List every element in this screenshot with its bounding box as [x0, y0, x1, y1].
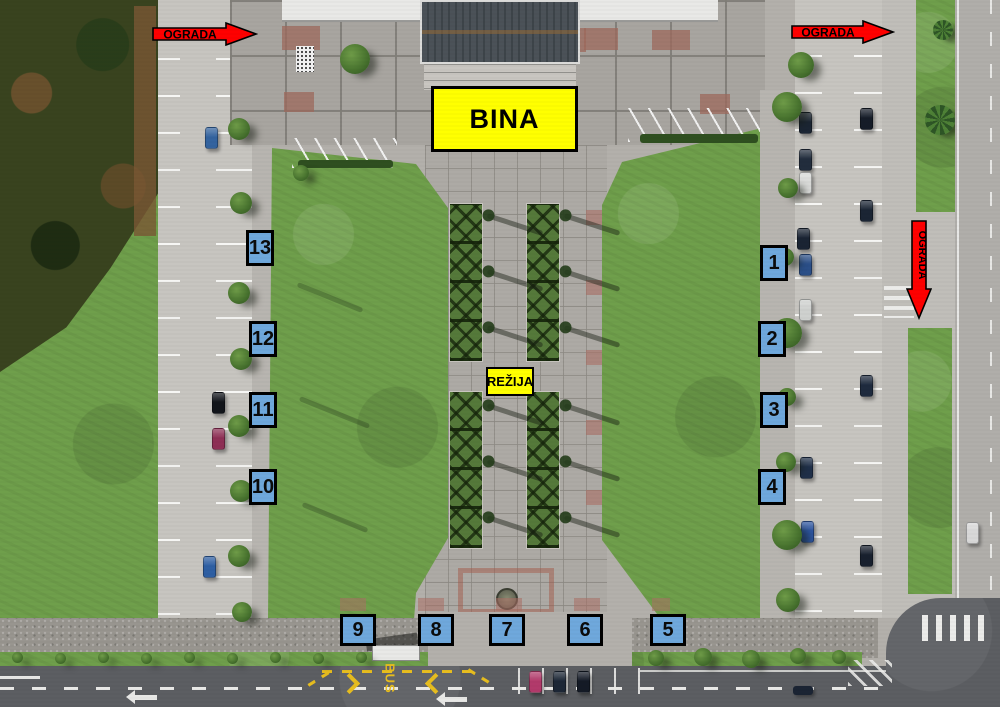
car	[797, 228, 810, 250]
stand-marker-8: 8	[418, 614, 454, 646]
car	[860, 200, 873, 222]
stand-marker-4: 4	[758, 469, 786, 505]
stand-marker-10: 10	[249, 469, 277, 505]
red-tile	[652, 30, 690, 50]
hatched-marking	[848, 660, 892, 686]
car	[799, 172, 812, 194]
fence-arrow-right-side: OGRADA	[906, 220, 932, 320]
car	[799, 299, 812, 321]
car	[577, 671, 590, 693]
car	[203, 556, 216, 578]
stage-roof	[420, 0, 580, 64]
parking-bay-lines	[158, 58, 180, 618]
car	[793, 686, 813, 695]
car	[529, 671, 542, 693]
road-line	[0, 676, 40, 679]
road-arrow-left	[445, 697, 467, 702]
stand-marker-12: 12	[249, 321, 277, 357]
bush	[313, 653, 324, 664]
street-edge-line	[957, 0, 959, 618]
stand-marker-1: 1	[760, 245, 788, 281]
tree	[788, 52, 814, 78]
bush	[184, 652, 195, 663]
red-tile-column	[586, 210, 603, 560]
tree	[772, 520, 802, 550]
bush	[356, 652, 367, 663]
stage-label: BINA	[431, 86, 578, 152]
hedge-row	[640, 134, 758, 143]
fence-label: OGRADA	[916, 231, 928, 280]
planter-strip	[526, 391, 560, 549]
car	[799, 254, 812, 276]
bus-road-marking: BUS	[383, 663, 398, 693]
stand-marker-9: 9	[340, 614, 376, 646]
tree	[293, 165, 309, 181]
tree	[232, 602, 252, 622]
planter-strip	[449, 203, 483, 362]
planter-strip	[449, 391, 483, 549]
street-dashed-line	[990, 0, 992, 618]
bush	[742, 650, 760, 668]
red-tile	[584, 28, 618, 50]
tree	[228, 415, 250, 437]
stand-marker-7: 7	[489, 614, 525, 646]
building-wing	[578, 0, 718, 22]
car	[800, 457, 813, 479]
tree	[778, 178, 798, 198]
bush	[227, 653, 238, 664]
aerial-site-map: BUS OGRADA OGRADA	[0, 0, 1000, 707]
tree	[230, 192, 252, 214]
bush	[55, 653, 66, 664]
bush	[790, 648, 806, 664]
car	[860, 375, 873, 397]
tree	[228, 545, 250, 567]
bush	[98, 652, 109, 663]
stand-marker-3: 3	[760, 392, 788, 428]
fence-arrow-top-left: OGRADA	[152, 22, 258, 46]
grass-verge	[908, 328, 952, 594]
bush	[141, 653, 152, 664]
tree	[772, 92, 802, 122]
car	[801, 521, 814, 543]
bush	[648, 650, 664, 666]
car	[799, 112, 812, 134]
fence-label: OGRADA	[163, 28, 217, 42]
checkerboard-paving	[296, 46, 314, 72]
palm-tree	[933, 20, 953, 40]
stand-marker-6: 6	[567, 614, 603, 646]
stand-marker-5: 5	[650, 614, 686, 646]
road-arrow-left	[135, 695, 157, 700]
tree	[228, 282, 250, 304]
bush	[12, 652, 23, 663]
car	[860, 108, 873, 130]
car	[212, 392, 225, 414]
tree	[776, 588, 800, 612]
roof-band	[422, 30, 578, 34]
hedge-row	[298, 160, 393, 168]
bush	[694, 648, 712, 666]
car	[966, 522, 979, 544]
parking-bay-lines	[854, 55, 882, 618]
stand-marker-11: 11	[249, 392, 277, 428]
control-booth-label: REŽIJA	[486, 367, 534, 396]
palm-tree	[925, 105, 955, 135]
building-wing	[282, 0, 422, 22]
car	[799, 149, 812, 171]
tree	[340, 44, 370, 74]
car	[553, 671, 566, 693]
stand-marker-13: 13	[246, 230, 274, 266]
red-tile	[284, 92, 314, 112]
parked-van	[372, 645, 420, 661]
bush	[270, 652, 281, 663]
stand-marker-2: 2	[758, 321, 786, 357]
car	[860, 545, 873, 567]
tree	[228, 118, 250, 140]
fence-arrow-top-right: OGRADA	[791, 20, 895, 44]
car	[212, 428, 225, 450]
crosswalk	[922, 615, 992, 641]
fence-label: OGRADA	[801, 26, 855, 40]
road-center-line	[0, 687, 1000, 690]
red-tile-band	[340, 598, 670, 611]
car	[205, 127, 218, 149]
right-lawn	[598, 112, 766, 620]
bush	[832, 650, 846, 664]
left-lawn	[268, 138, 453, 620]
